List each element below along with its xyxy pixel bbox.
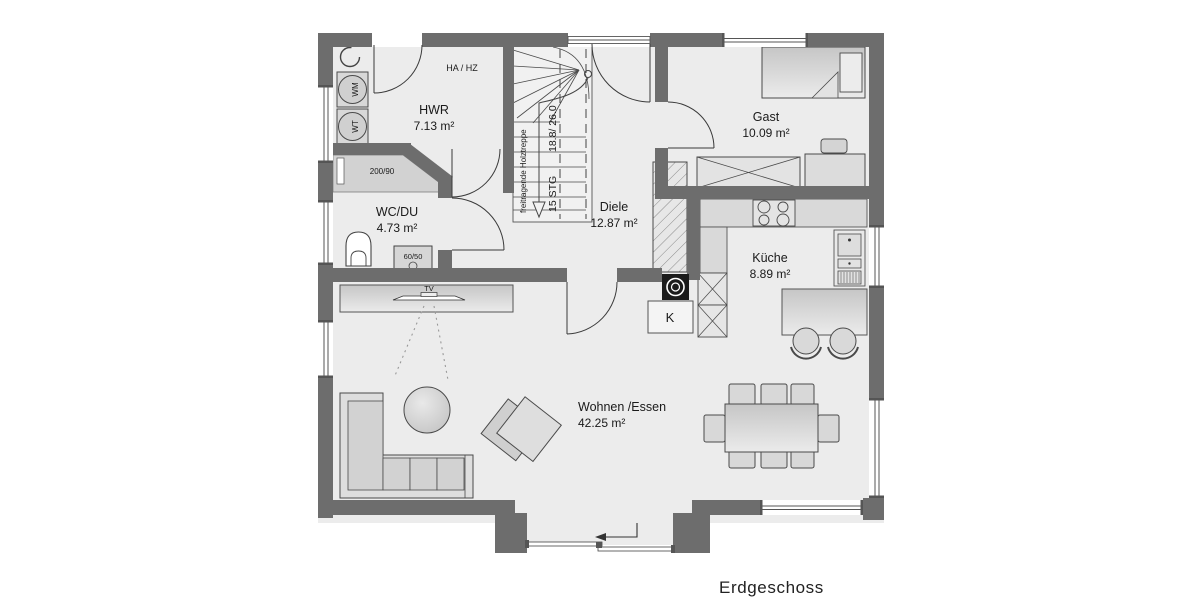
dining-chair [791, 384, 814, 405]
room-area-wc: 4.73 m² [377, 221, 418, 235]
room-area-wohnen: 42.25 m² [578, 416, 625, 430]
guest-bed [762, 47, 865, 98]
room-area-hwr: 7.13 m² [414, 119, 455, 133]
room-area-diele: 12.87 m² [590, 216, 637, 230]
stair-count-label: 15 STG [547, 176, 559, 212]
staircase: freitragende Holztreppe 15 STG 18.8/ 26.… [513, 45, 592, 222]
kitchen-sink-unit [834, 230, 865, 286]
room-label-diele: Diele [600, 200, 629, 214]
window-kitchen-right [869, 225, 884, 288]
room-label-wc: WC/DU [376, 205, 418, 219]
toilet [346, 232, 371, 266]
dining-chair [704, 415, 725, 442]
room-label-gast: Gast [753, 110, 780, 124]
bar-stool [828, 328, 858, 359]
dryer: WT [337, 109, 368, 144]
bar-stool [791, 328, 821, 359]
dining-table [725, 404, 818, 452]
basin-size-label: 60/50 [404, 252, 423, 261]
window-dining-bottom [760, 500, 863, 515]
chimney-label: K [666, 310, 675, 325]
tall-cabinets [698, 273, 727, 337]
dryer-label: WT [351, 120, 360, 133]
shower-size-label: 200/90 [370, 167, 395, 176]
tv-label: TV [424, 284, 434, 293]
room-label-kueche: Küche [752, 251, 787, 265]
dining-chair [761, 384, 787, 405]
floor-plan-page: WM WT 200/90 60/50 [0, 0, 1200, 600]
dining-chair [818, 415, 839, 442]
window-living-left [318, 320, 333, 378]
room-area-gast: 10.09 m² [742, 126, 789, 140]
room-label-wohnen: Wohnen /Essen [578, 400, 666, 414]
room-area-kueche: 8.89 m² [750, 267, 791, 281]
coffee-table [404, 387, 450, 433]
cooktop [753, 200, 795, 226]
window-wc-left [318, 200, 333, 265]
room-label-hwr: HWR [419, 103, 449, 117]
guest-wardrobe [697, 157, 800, 188]
kitchen-island [782, 289, 867, 335]
window-dining-right [869, 398, 884, 498]
window-hwr-left [318, 85, 333, 163]
window-guest-top [722, 33, 808, 47]
dining-chair [729, 384, 755, 405]
tv-sideboard: TV [340, 284, 513, 312]
ha-hz-label: HA / HZ [446, 63, 478, 73]
stair-dim-label: 18.8/ 26.0 [547, 105, 559, 152]
plan-title: Erdgeschoss [719, 578, 824, 597]
stair-type-label: freitragende Holztreppe [519, 129, 528, 213]
floor-plan-drawing: WM WT 200/90 60/50 [0, 0, 1200, 600]
washing-machine-label: WM [351, 82, 360, 97]
washing-machine: WM [337, 72, 368, 107]
